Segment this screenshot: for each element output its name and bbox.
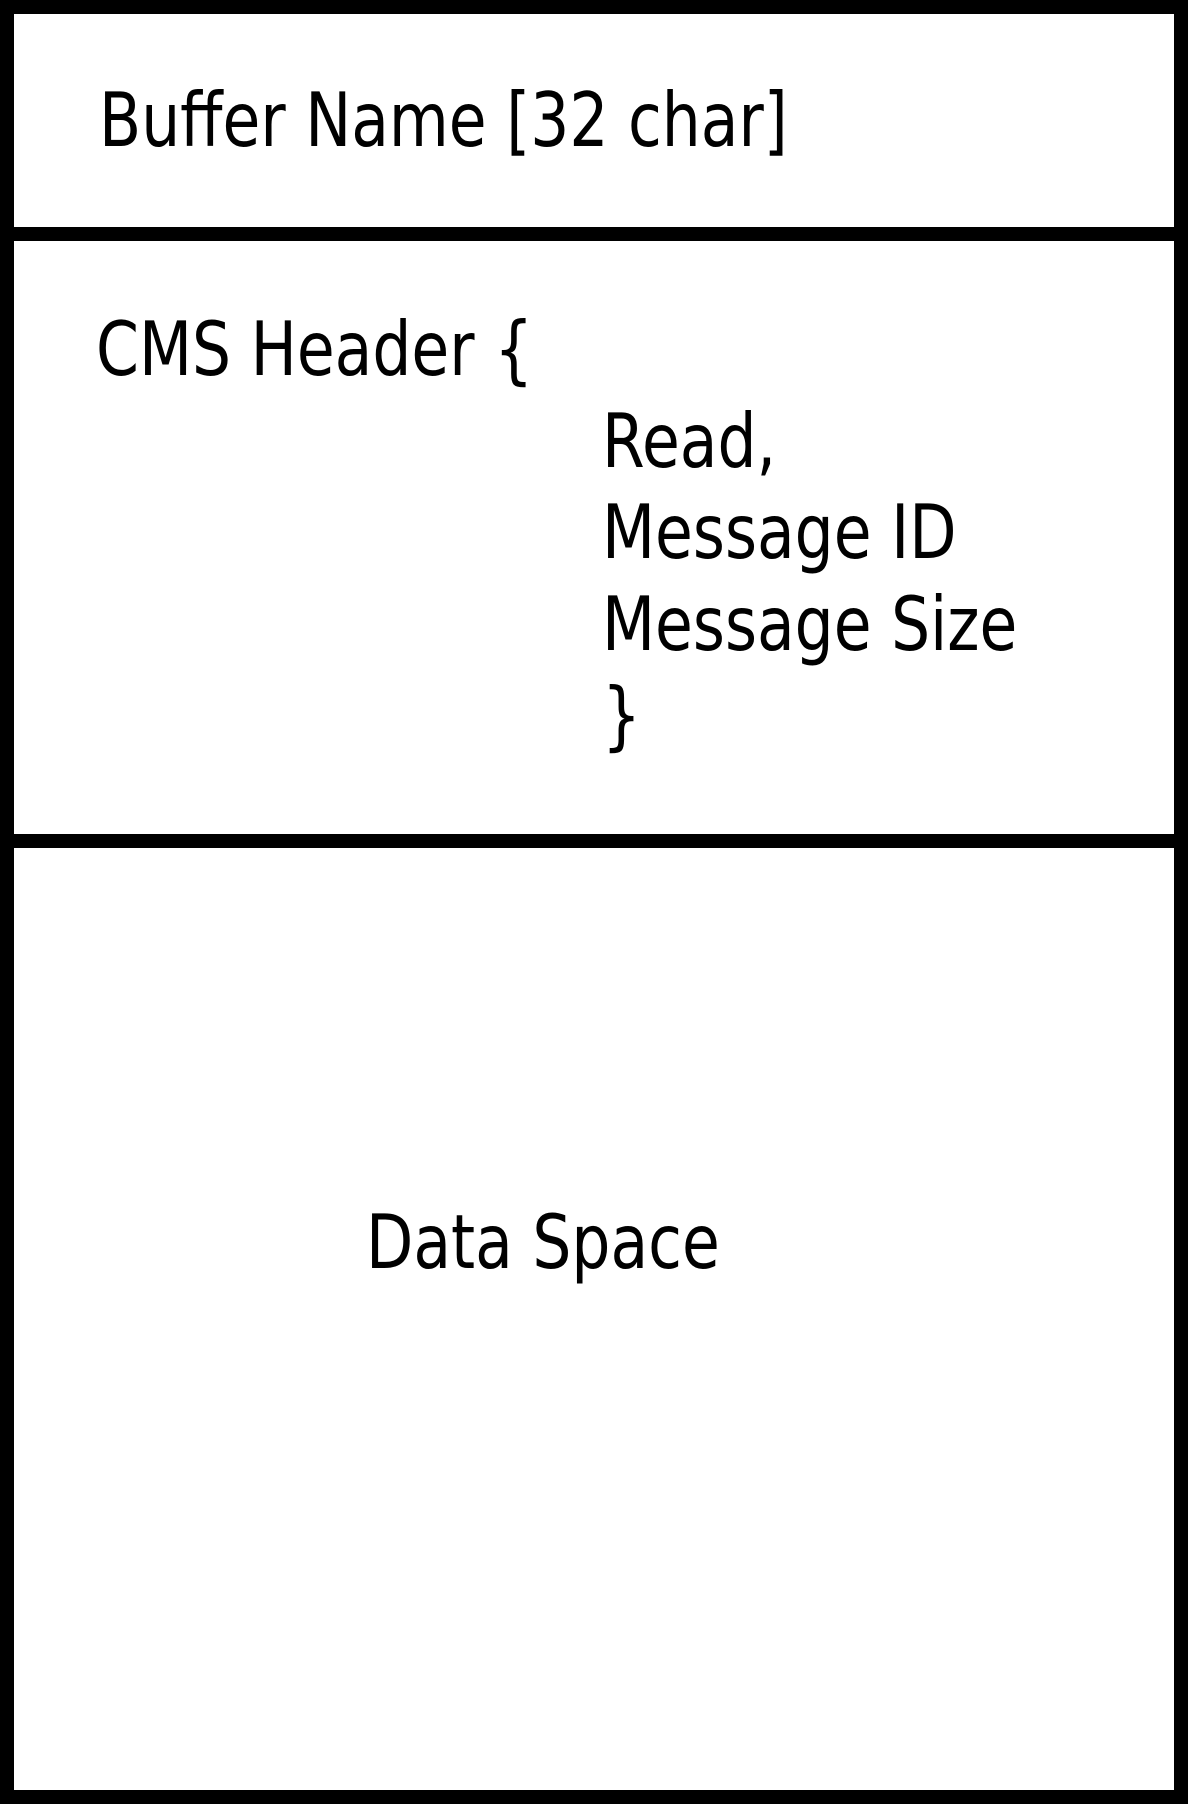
data-space-section: Data Space	[14, 848, 1174, 1790]
buffer-name-label: Buffer Name [32 char]	[99, 75, 788, 167]
cms-field-message-size: Message Size	[602, 579, 1017, 671]
buffer-name-section: Buffer Name [32 char]	[14, 14, 1174, 227]
cms-field-read: Read,	[602, 396, 776, 488]
cms-header-open-label: CMS Header {	[96, 304, 533, 396]
cms-field-message-id: Message ID	[602, 487, 957, 579]
data-space-label: Data Space	[366, 1197, 720, 1289]
section-divider-bottom	[14, 834, 1174, 848]
cms-header-section: CMS Header { Read, Message ID Message Si…	[14, 241, 1174, 834]
cms-header-close-brace: }	[602, 670, 641, 762]
memory-buffer-diagram: Buffer Name [32 char] CMS Header { Read,…	[0, 0, 1188, 1804]
section-divider-top	[14, 227, 1174, 241]
